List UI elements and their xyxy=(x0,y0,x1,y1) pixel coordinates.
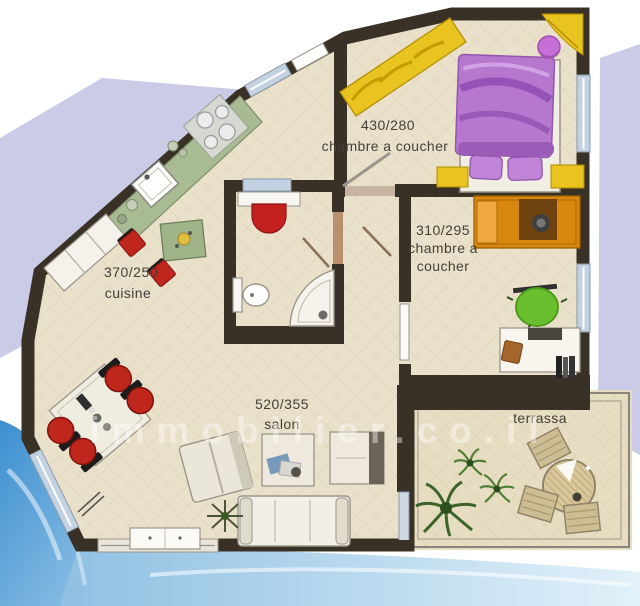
pillow xyxy=(469,155,502,180)
master-bedroom-dimensions: 430/280 xyxy=(361,117,415,133)
window-bathroom xyxy=(243,179,291,191)
kitchen-appliance xyxy=(127,200,138,211)
toilet-detail xyxy=(250,293,254,297)
terrace-sliding-door xyxy=(399,492,409,542)
desk-chair xyxy=(501,340,523,363)
book xyxy=(563,357,568,378)
palm-center xyxy=(440,502,452,514)
beanbag-body xyxy=(516,288,558,326)
wall-master-west xyxy=(334,42,347,190)
wall-salon-east-corner xyxy=(397,540,410,548)
pouf xyxy=(538,36,560,58)
sink-faucet xyxy=(144,174,149,179)
wall-bath-east-upper xyxy=(332,192,344,212)
wall-terrace-north xyxy=(399,375,590,410)
palm-center xyxy=(494,486,501,493)
sofa-armrest xyxy=(240,498,252,544)
kitchen-item xyxy=(168,141,178,151)
burner xyxy=(219,124,235,140)
kitchen-label: cuisine xyxy=(105,285,151,301)
wall-bath-west xyxy=(224,180,236,344)
wall-bath-south xyxy=(224,326,344,344)
plant-center xyxy=(221,512,229,520)
desk-chair-seat xyxy=(537,219,546,228)
second-bedroom-label-line2: coucher xyxy=(417,258,470,274)
toilet-bowl xyxy=(243,284,269,306)
floor-plan: 430/280 chambre a coucher 310/295 chambr… xyxy=(0,0,640,606)
table-cup xyxy=(573,493,582,502)
table-plate xyxy=(178,233,190,245)
bench xyxy=(437,167,468,187)
palm-center xyxy=(467,460,474,467)
second-bedroom-label-line1: chambre a xyxy=(408,240,478,256)
burner xyxy=(216,106,229,119)
book xyxy=(556,356,562,378)
toilet-tank xyxy=(233,278,242,312)
duvet-rolled-edge xyxy=(458,142,554,156)
table-bowl xyxy=(291,467,301,477)
shower-drain xyxy=(319,311,328,320)
bench xyxy=(551,165,584,188)
chair-seat xyxy=(501,340,523,363)
desk-monitor xyxy=(528,328,562,340)
sofa-armrest xyxy=(336,498,348,544)
kitchen-item xyxy=(179,149,187,157)
master-bedroom-label: chambre a coucher xyxy=(322,138,449,154)
bathroom-door xyxy=(333,212,343,264)
washbasin xyxy=(252,204,286,233)
book xyxy=(569,356,575,378)
watermark-text: immobilier.co.il xyxy=(89,410,550,451)
burner xyxy=(197,112,213,128)
sideboard-knob xyxy=(178,536,181,539)
master-door-threshold xyxy=(345,186,395,196)
kitchen-dimensions: 370/250 xyxy=(104,264,158,280)
bedroom2-door-leaf xyxy=(400,304,409,360)
floor-plan-image: 430/280 chambre a coucher 310/295 chambr… xyxy=(0,0,640,606)
houseplant xyxy=(207,500,243,532)
second-bedroom-dimensions: 310/295 xyxy=(416,222,470,238)
sofa xyxy=(238,496,350,546)
pillow xyxy=(508,156,543,180)
terrace-chair xyxy=(564,502,601,533)
table-item xyxy=(175,244,179,248)
sofa-body xyxy=(238,496,350,546)
burner xyxy=(205,136,218,149)
sideboard-knob xyxy=(148,536,151,539)
table-sparkle xyxy=(586,466,590,470)
table-item xyxy=(188,231,192,235)
bed-pillow xyxy=(477,201,497,243)
kitchen-appliance xyxy=(118,215,127,224)
